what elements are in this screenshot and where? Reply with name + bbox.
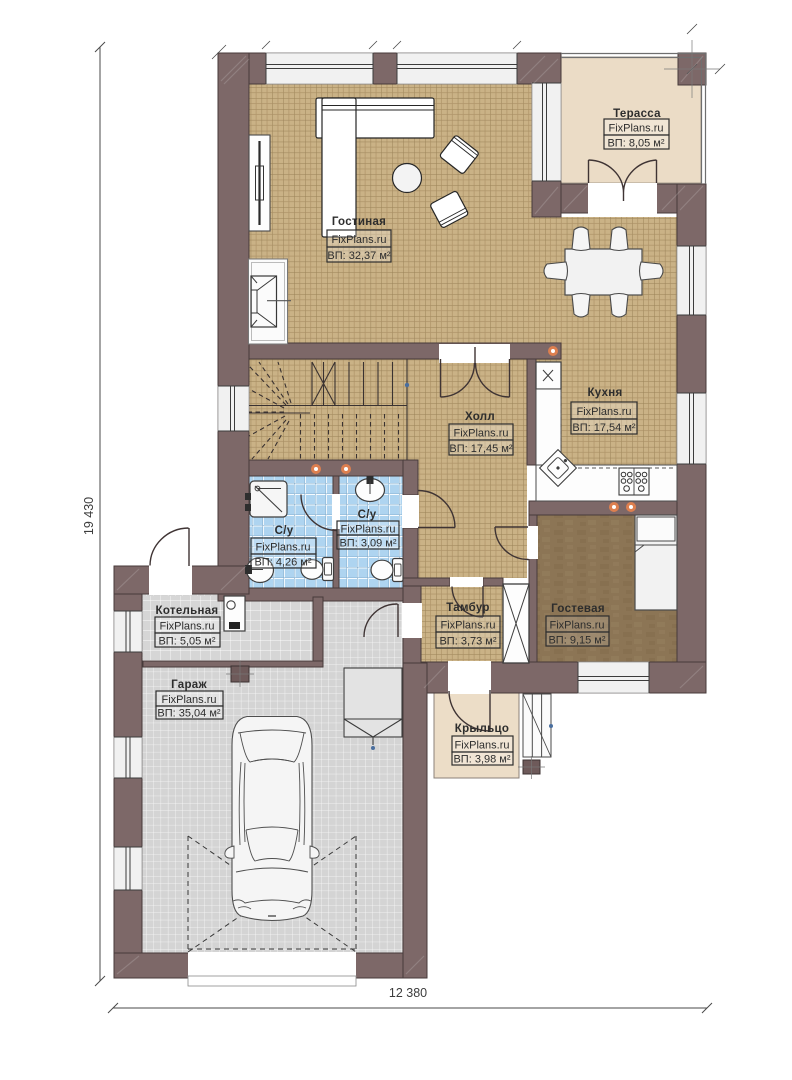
svg-text:FixPlans.ru: FixPlans.ru bbox=[454, 740, 509, 752]
svg-text:FixPlans.ru: FixPlans.ru bbox=[608, 123, 663, 135]
svg-text:FixPlans.ru: FixPlans.ru bbox=[549, 620, 604, 632]
svg-text:Гараж: Гараж bbox=[171, 679, 207, 691]
svg-text:FixPlans.ru: FixPlans.ru bbox=[255, 542, 310, 554]
svg-text:ВП: 9,15 м²: ВП: 9,15 м² bbox=[548, 635, 605, 647]
svg-text:Гостевая: Гостевая bbox=[551, 603, 605, 615]
svg-text:ВП: 5,05 м²: ВП: 5,05 м² bbox=[158, 636, 215, 648]
svg-text:Тамбур: Тамбур bbox=[446, 602, 490, 614]
svg-text:С/у: С/у bbox=[275, 525, 294, 537]
svg-text:ВП: 3,09 м²: ВП: 3,09 м² bbox=[339, 538, 396, 550]
svg-text:19 430: 19 430 bbox=[82, 497, 96, 535]
svg-text:Крыльцо: Крыльцо bbox=[455, 723, 509, 735]
svg-text:12 380: 12 380 bbox=[389, 986, 427, 1000]
svg-text:FixPlans.ru: FixPlans.ru bbox=[161, 694, 216, 706]
svg-text:FixPlans.ru: FixPlans.ru bbox=[340, 524, 395, 536]
svg-text:Терасса: Терасса bbox=[613, 108, 661, 120]
svg-text:ВП: 35,04 м²: ВП: 35,04 м² bbox=[157, 708, 221, 720]
svg-text:ВП: 17,54 м²: ВП: 17,54 м² bbox=[572, 422, 636, 434]
svg-text:FixPlans.ru: FixPlans.ru bbox=[453, 428, 508, 440]
svg-text:С/у: С/у bbox=[358, 509, 377, 521]
svg-text:ВП: 32,37 м²: ВП: 32,37 м² bbox=[327, 250, 391, 262]
svg-text:ВП: 8,05 м²: ВП: 8,05 м² bbox=[607, 138, 664, 150]
svg-text:ВП: 4,26 м²: ВП: 4,26 м² bbox=[254, 557, 311, 569]
svg-text:Холл: Холл bbox=[465, 411, 495, 423]
svg-text:ВП: 3,98 м²: ВП: 3,98 м² bbox=[453, 754, 510, 766]
svg-text:ВП: 3,73 м²: ВП: 3,73 м² bbox=[439, 636, 496, 648]
svg-text:FixPlans.ru: FixPlans.ru bbox=[331, 234, 386, 246]
svg-text:FixPlans.ru: FixPlans.ru bbox=[159, 621, 214, 633]
svg-text:Котельная: Котельная bbox=[156, 605, 219, 617]
svg-text:Гостиная: Гостиная bbox=[332, 216, 386, 228]
svg-text:Кухня: Кухня bbox=[587, 387, 622, 399]
svg-text:FixPlans.ru: FixPlans.ru bbox=[440, 620, 495, 632]
svg-text:ВП: 17,45 м²: ВП: 17,45 м² bbox=[449, 443, 513, 455]
svg-text:FixPlans.ru: FixPlans.ru bbox=[576, 406, 631, 418]
